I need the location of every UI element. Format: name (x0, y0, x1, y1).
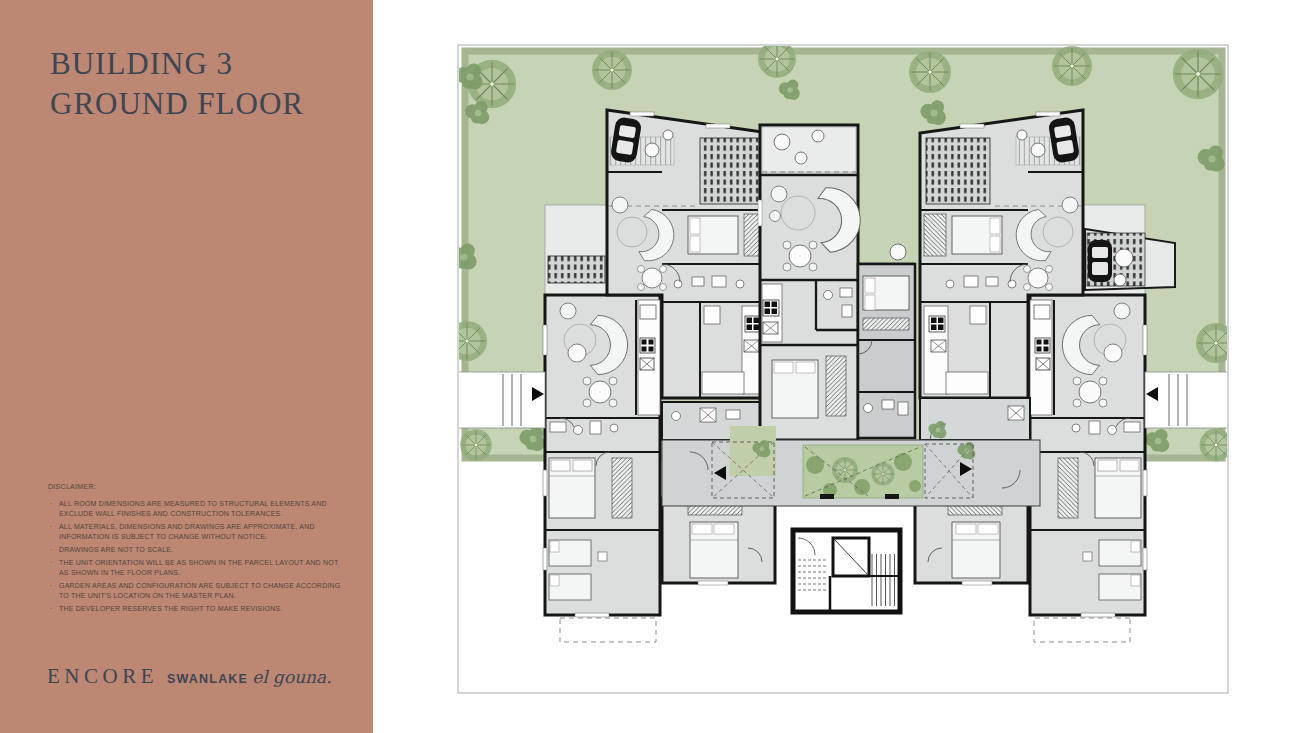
logo-encore: ENCORE (47, 664, 158, 689)
title-line-1: BUILDING 3 (50, 44, 304, 84)
disclaimer-item: ALL ROOM DIMENSIONS ARE MEASURED TO STRU… (48, 499, 348, 519)
disclaimer-item: THE DEVELOPER RESERVES THE RIGHT TO MAKE… (48, 604, 348, 614)
disclaimer: DISCLAIMER: ALL ROOM DIMENSIONS ARE MEAS… (48, 483, 348, 617)
info-panel: BUILDING 3 GROUND FLOOR DISCLAIMER: ALL … (0, 0, 373, 733)
disclaimer-list: ALL ROOM DIMENSIONS ARE MEASURED TO STRU… (48, 499, 348, 614)
logo-swanlake: SWANLAKE (167, 672, 248, 686)
brand-logo: ENCORE SWANLAKE el gouna. (47, 664, 332, 689)
stair-elevator-core (793, 530, 900, 612)
brochure-page: BUILDING 3 GROUND FLOOR DISCLAIMER: ALL … (0, 0, 1312, 733)
disclaimer-heading: DISCLAIMER: (48, 483, 348, 490)
disclaimer-item: GARDEN AREAS AND CONFIGURATION ARE SUBJE… (48, 581, 348, 601)
logo-elgouna: el gouna. (252, 667, 331, 687)
page-title: BUILDING 3 GROUND FLOOR (50, 44, 304, 124)
disclaimer-item: DRAWINGS ARE NOT TO SCALE. (48, 545, 348, 555)
title-line-2: GROUND FLOOR (50, 84, 304, 124)
disclaimer-item: ALL MATERIALS, DIMENSIONS AND DRAWINGS A… (48, 522, 348, 542)
disclaimer-item: THE UNIT ORIENTATION WILL BE AS SHOWN IN… (48, 558, 348, 578)
